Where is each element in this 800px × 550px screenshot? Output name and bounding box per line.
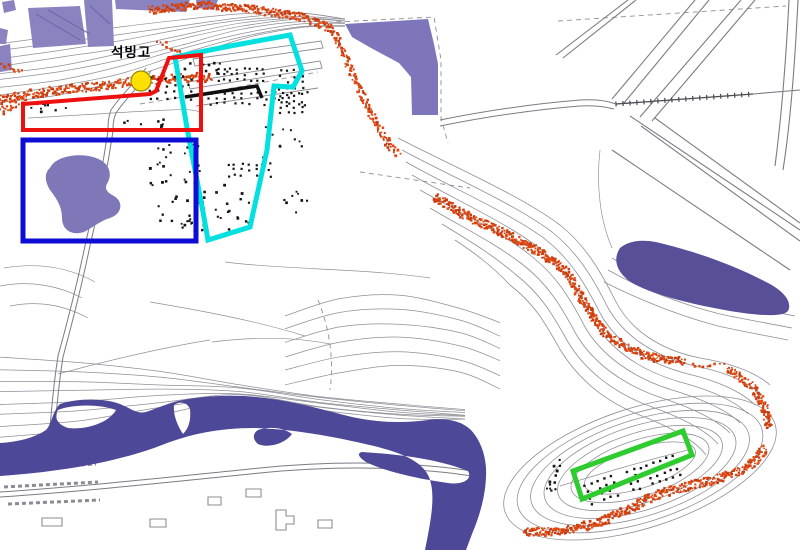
roads-topright (556, 0, 800, 270)
contours-left-patch (0, 266, 95, 318)
purple-blob-top (345, 19, 438, 115)
pond (46, 155, 121, 233)
scree-ridge-gap (692, 363, 725, 369)
seokbinggo-label: 석빙고 (111, 46, 151, 60)
seokbinggo-marker (131, 71, 151, 91)
feature-scatter-5 (215, 184, 250, 231)
feature-scatter-3 (184, 62, 229, 75)
feature-scatter-2 (123, 118, 165, 129)
feature-scatter-8 (546, 459, 561, 492)
road-to-rail (440, 100, 616, 126)
contours-southeast-hill (486, 367, 793, 550)
map-canvas: 석빙고 (0, 0, 800, 550)
buildings-bottom (42, 489, 332, 530)
map-svg (0, 0, 800, 550)
dashed-paths (140, 6, 786, 390)
scree-top (147, 1, 334, 34)
feature-grid-c (207, 91, 308, 106)
railway-line (616, 92, 753, 107)
feature-grid-b (218, 67, 265, 82)
feature-scatter-7 (283, 191, 308, 214)
